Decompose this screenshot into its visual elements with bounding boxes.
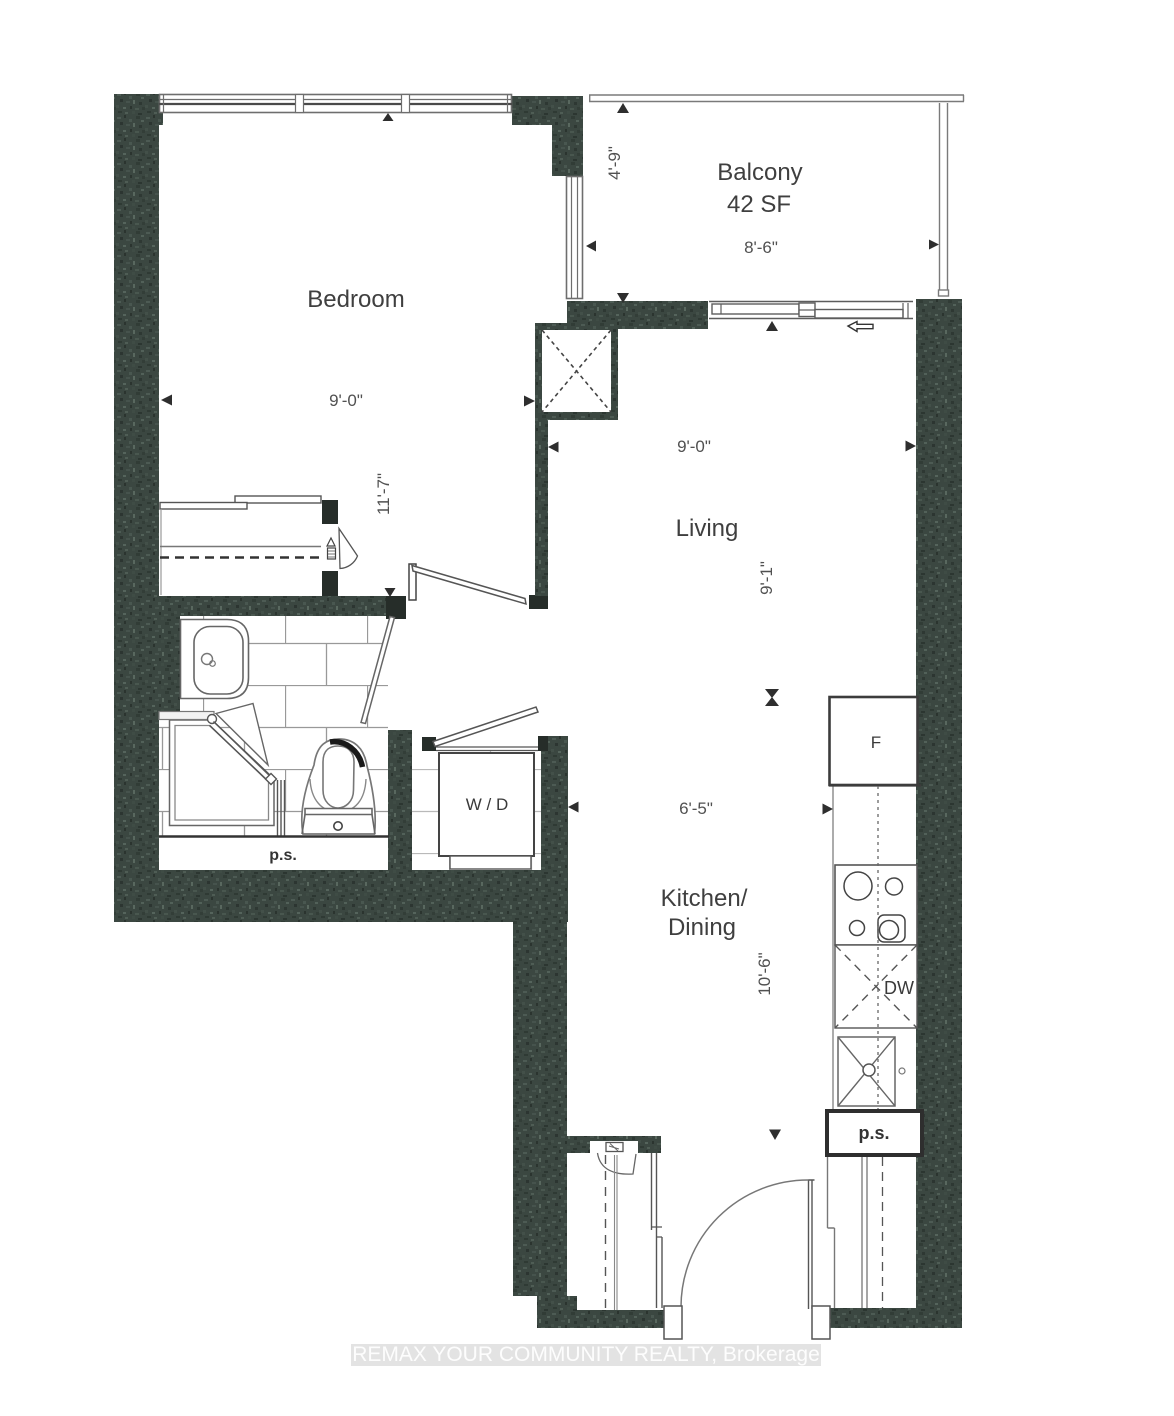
- svg-text:Dining: Dining: [668, 914, 736, 941]
- svg-text:11'-7": 11'-7": [374, 473, 393, 515]
- svg-text:9'-0": 9'-0": [677, 437, 711, 456]
- svg-text:W / D: W / D: [466, 795, 509, 814]
- svg-text:F: F: [871, 733, 881, 752]
- svg-text:p.s.: p.s.: [858, 1123, 889, 1143]
- svg-text:9'-0": 9'-0": [329, 391, 363, 410]
- svg-text:p.s.: p.s.: [269, 847, 297, 864]
- svg-text:9'-1": 9'-1": [757, 561, 776, 595]
- svg-text:Bedroom: Bedroom: [307, 286, 404, 313]
- svg-text:6'-5": 6'-5": [679, 799, 713, 818]
- svg-text:REMAX YOUR COMMUNITY REALTY, B: REMAX YOUR COMMUNITY REALTY, Brokerage: [352, 1343, 820, 1366]
- svg-text:Kitchen/: Kitchen/: [661, 885, 748, 912]
- svg-text:10'-6": 10'-6": [755, 952, 774, 995]
- svg-text:42 SF: 42 SF: [727, 191, 791, 218]
- svg-text:8'-6": 8'-6": [744, 238, 778, 257]
- svg-text:4'-9": 4'-9": [605, 146, 624, 180]
- svg-text:Living: Living: [676, 515, 739, 542]
- svg-text:DW: DW: [884, 978, 914, 998]
- svg-text:Balcony: Balcony: [717, 159, 802, 186]
